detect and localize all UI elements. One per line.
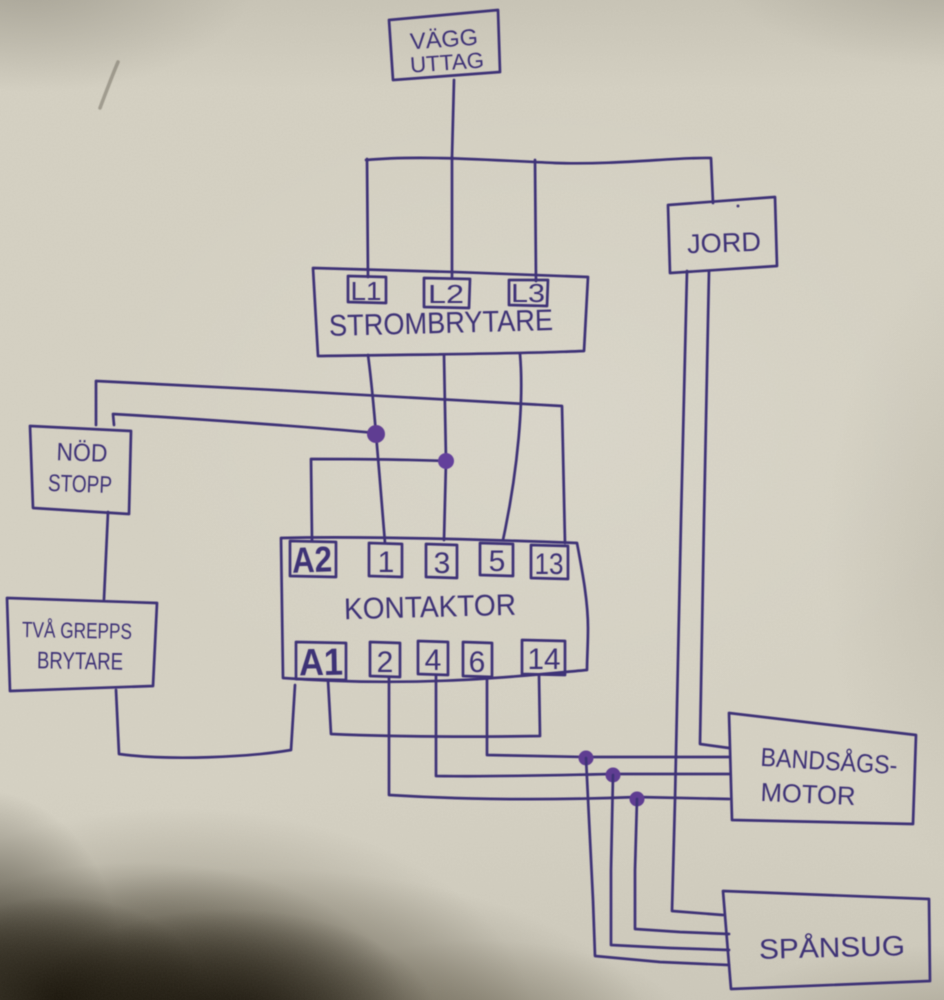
svg-text:UTTAG: UTTAG (409, 47, 485, 77)
svg-text:TVÅ GREPPS: TVÅ GREPPS (22, 617, 132, 644)
svg-text:4: 4 (425, 644, 442, 677)
svg-text:14: 14 (528, 643, 561, 676)
svg-text:MOTOR: MOTOR (760, 777, 856, 811)
svg-text:KONTAKTOR: KONTAKTOR (344, 589, 517, 626)
svg-text:3: 3 (434, 547, 451, 580)
svg-text:L3: L3 (511, 278, 545, 308)
svg-text:JORD: JORD (686, 227, 761, 260)
svg-text:2: 2 (377, 646, 394, 679)
svg-text:L2: L2 (428, 279, 464, 309)
svg-text:1: 1 (378, 546, 395, 579)
svg-text:SPÅNSUG: SPÅNSUG (759, 930, 906, 965)
svg-text:L1: L1 (351, 276, 382, 306)
svg-text:13: 13 (535, 548, 564, 581)
svg-text:STOPP: STOPP (48, 470, 113, 499)
svg-text:6: 6 (469, 646, 486, 679)
svg-text:STROMBRYTARE: STROMBRYTARE (329, 304, 554, 343)
svg-text:5: 5 (489, 545, 506, 578)
svg-text:A2: A2 (291, 538, 332, 580)
svg-text:NÖD: NÖD (56, 438, 108, 468)
svg-text:A1: A1 (299, 642, 344, 685)
svg-text:BRYTARE: BRYTARE (37, 647, 123, 675)
